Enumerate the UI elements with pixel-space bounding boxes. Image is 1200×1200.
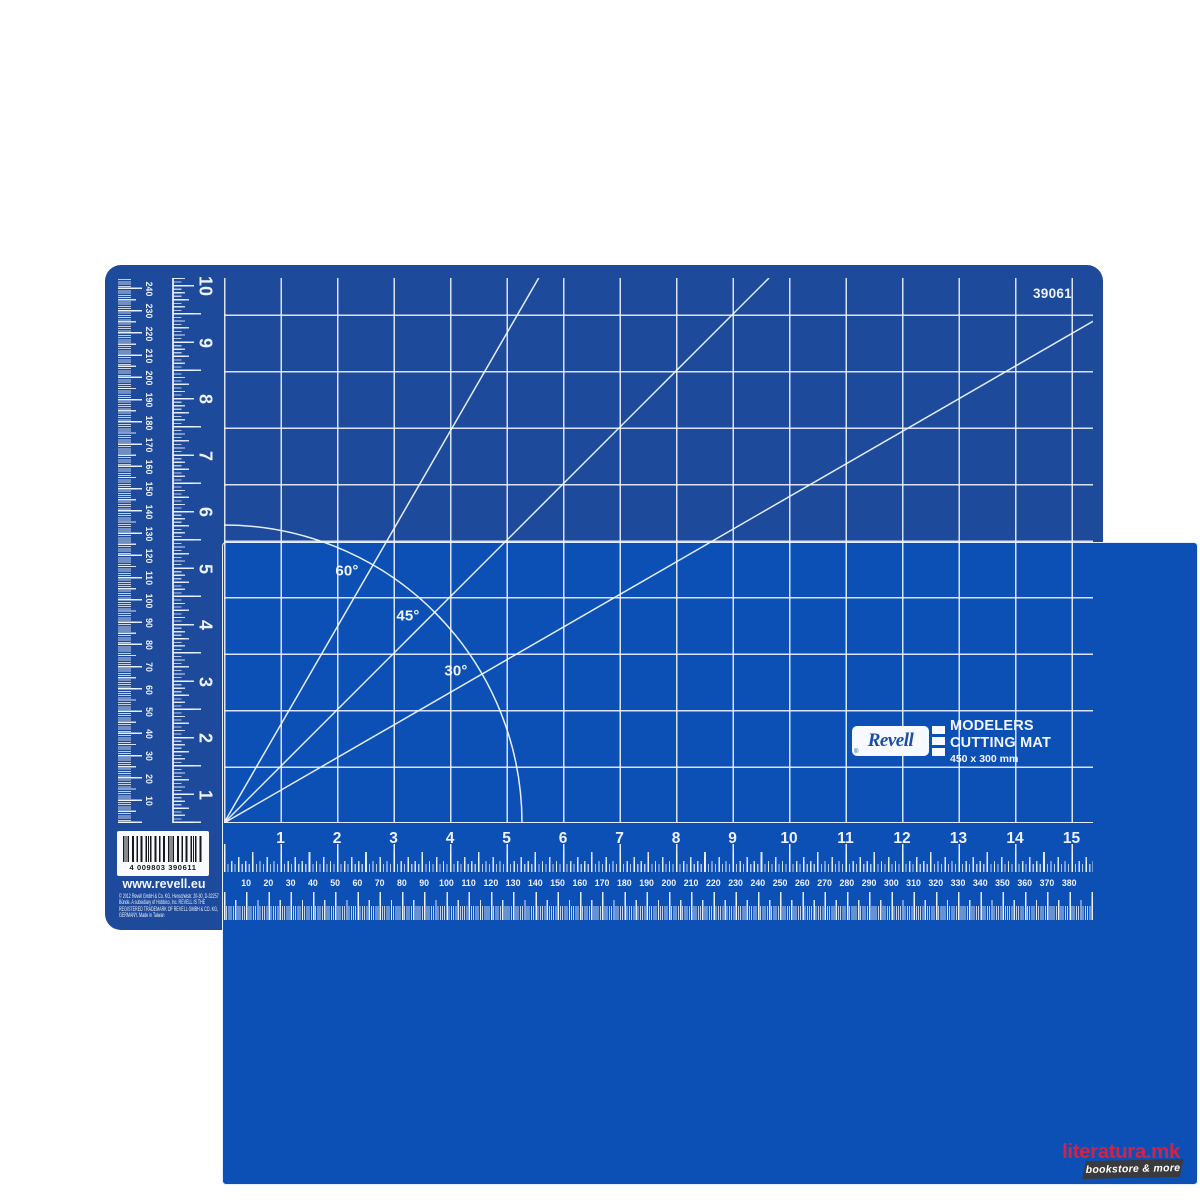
angle-line-45 bbox=[224, 278, 769, 823]
legal-line: GERMANY. Made in Taiwan bbox=[119, 913, 218, 919]
registered-mark: ® bbox=[854, 749, 858, 755]
left-inch-ruler-ticks bbox=[173, 278, 201, 823]
revell-logo-box: ® Revell bbox=[852, 726, 929, 756]
bottom-mm-ruler-ticks bbox=[224, 892, 1093, 920]
logo-title-line1: MODELERS bbox=[950, 718, 1034, 734]
logo-size-line: 450 x 300 mm bbox=[950, 753, 1018, 765]
angle-label-45: 45° bbox=[396, 608, 419, 625]
angle-line-60 bbox=[224, 278, 539, 823]
barcode-digits: 4 009803 390611 bbox=[117, 863, 209, 872]
left-mm-ruler-ticks bbox=[118, 278, 142, 823]
barcode: 4 009803 390611 bbox=[117, 831, 209, 876]
watermark-badge: bookstore & more bbox=[1082, 1159, 1184, 1179]
product-image: 60° 45° 30° 123456789101112131415 102030… bbox=[0, 0, 1200, 1200]
angle-label-60: 60° bbox=[335, 563, 358, 580]
barcode-bars-icon bbox=[123, 836, 203, 862]
watermark-tagline: bookstore & more bbox=[1086, 1162, 1181, 1176]
angle-label-30: 30° bbox=[444, 663, 467, 680]
legal-text: © 2012 Revell GmbH & Co. KG, Henschelstr… bbox=[119, 894, 218, 920]
website-url: www.revell.eu bbox=[119, 877, 209, 891]
logo-title-line2: CUTTING MAT bbox=[950, 735, 1051, 751]
product-code: 39061 bbox=[1028, 286, 1072, 301]
left-inch-ruler-baseline bbox=[172, 278, 173, 823]
bottom-inch-ruler-ticks bbox=[224, 844, 1093, 872]
revell-logo-stripes-icon bbox=[932, 726, 945, 756]
revell-wordmark: Revell bbox=[868, 730, 914, 752]
